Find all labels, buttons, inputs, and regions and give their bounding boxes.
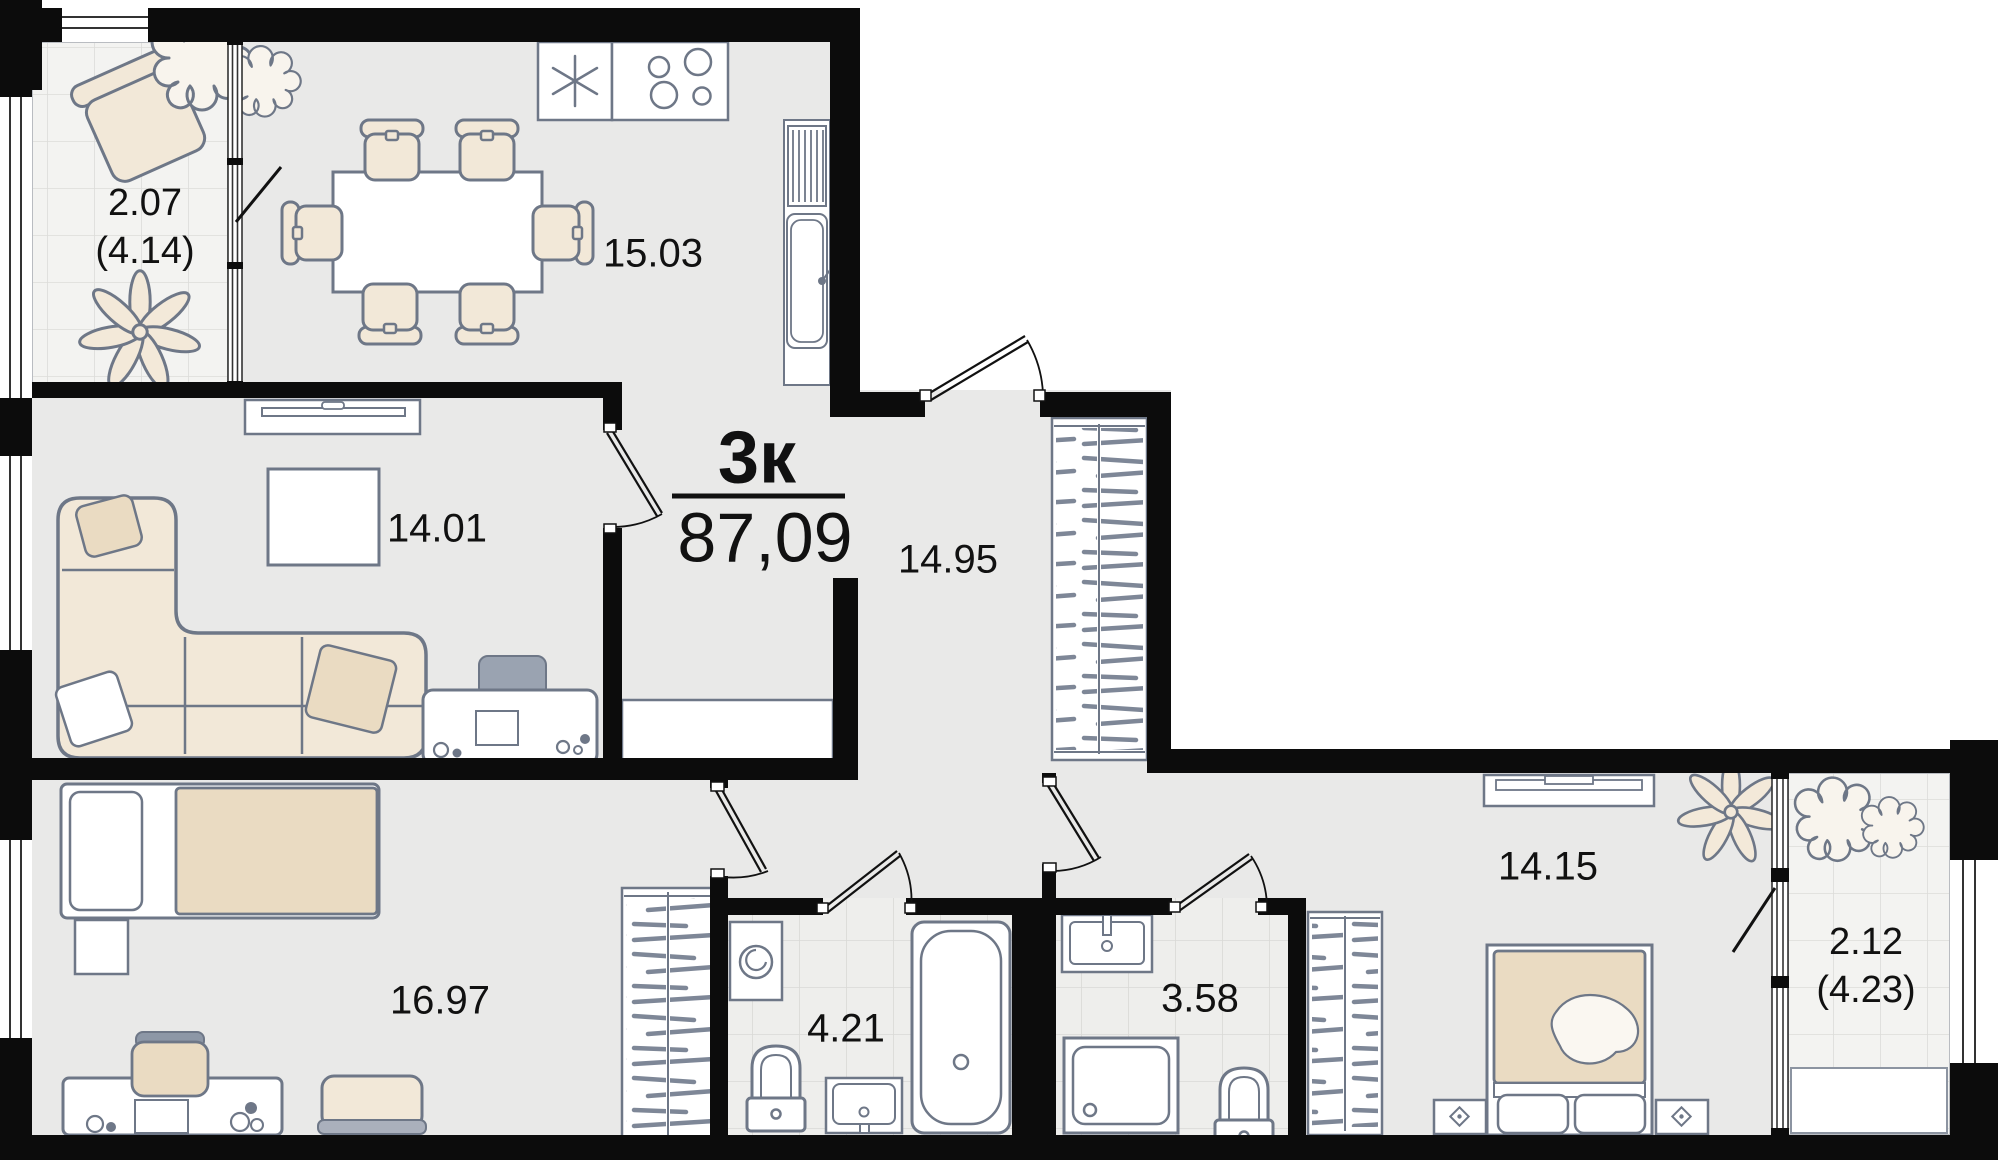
floor-plan-canvas: 15.03 14.01 14.95 16.97 4.21 3.58 14.15 …: [0, 0, 1998, 1160]
window-living-left: [0, 449, 32, 657]
wall: [10, 758, 833, 780]
desk-chair: [132, 1032, 208, 1096]
nightstand-right: [1656, 1100, 1708, 1134]
wardrobe-hallway: [1052, 418, 1147, 760]
wall: [0, 1135, 1998, 1160]
label-bedroom2-area: 14.15: [1498, 845, 1598, 889]
balcony2-glazing: [1771, 772, 1789, 1135]
label-balcony2-area: 2.12: [1829, 921, 1903, 963]
wall: [1950, 740, 1998, 853]
bed-pillow: [70, 792, 142, 910]
label-balcony1-total: (4.14): [95, 230, 194, 272]
nightstand-left: [1434, 1100, 1486, 1134]
label-hallway-area: 14.95: [898, 538, 998, 582]
stove: [612, 42, 728, 120]
wall: [726, 898, 823, 915]
tv-stand: [322, 402, 344, 409]
label-bedroom1-area: 16.97: [390, 979, 490, 1023]
label-bathroom1-area: 4.21: [807, 1007, 885, 1051]
wall: [10, 382, 622, 398]
toilet: [747, 1046, 805, 1131]
window-balcony1-top: [56, 8, 154, 42]
wall: [152, 8, 860, 42]
wall: [833, 578, 858, 780]
dining-chair: [361, 120, 423, 180]
balcony-2-blank-zone: [1791, 1068, 1947, 1133]
label-balcony1-area: 2.07: [108, 182, 182, 224]
bathtub: [912, 922, 1010, 1133]
wall: [710, 876, 728, 1135]
dining-chair: [533, 202, 593, 264]
double-bed: [1487, 945, 1652, 1135]
label-apartment-type: 3к: [718, 416, 797, 499]
media-console: [423, 690, 597, 764]
label-total-area: 87,09: [677, 498, 852, 576]
sink-drainer: [788, 126, 826, 206]
wall: [1171, 749, 1956, 773]
shower: [1064, 1038, 1178, 1133]
armchair: [318, 1076, 426, 1134]
label-living-area: 14.01: [387, 507, 487, 551]
window-balcony1-left: [0, 90, 32, 405]
wall: [830, 8, 860, 417]
wall: [1288, 898, 1306, 1135]
nightstand: [75, 920, 128, 974]
bed-blanket: [176, 788, 377, 914]
dining-table: [333, 172, 542, 292]
label-bathroom2-area: 3.58: [1161, 977, 1239, 1021]
wardrobe-bedroom1: [622, 888, 714, 1145]
wall: [1056, 898, 1172, 915]
wall: [830, 392, 925, 417]
wardrobe-bedroom2: [1308, 912, 1382, 1135]
label-kitchen-area: 15.03: [603, 232, 703, 276]
kitchen-sink: [787, 214, 830, 348]
dining-chair: [456, 120, 518, 180]
dresser: [1484, 775, 1654, 806]
wall: [603, 528, 622, 780]
wall: [906, 898, 1012, 915]
wall: [0, 405, 32, 449]
window-balcony2-right: [1950, 853, 1998, 1070]
dining-chair: [282, 202, 342, 264]
decor-bush-icon: [1862, 797, 1924, 858]
wall: [1147, 392, 1171, 773]
floor-plan: 15.03 14.01 14.95 16.97 4.21 3.58 14.15 …: [0, 0, 1998, 1160]
hall-cabinet: [622, 700, 833, 760]
coffee-table: [268, 469, 379, 565]
dining-chair: [359, 284, 421, 344]
window-bedroom1-left: [0, 833, 32, 1045]
washing-machine: [730, 922, 782, 1000]
balcony1-glazing: [227, 38, 243, 388]
label-balcony2-total: (4.23): [1816, 969, 1915, 1011]
wall: [10, 8, 58, 42]
bathroom2-sink: [1062, 915, 1152, 972]
bathroom1-sink: [826, 1078, 902, 1133]
dining-chair: [456, 284, 518, 344]
wall: [1012, 898, 1056, 1135]
wall: [0, 657, 32, 833]
